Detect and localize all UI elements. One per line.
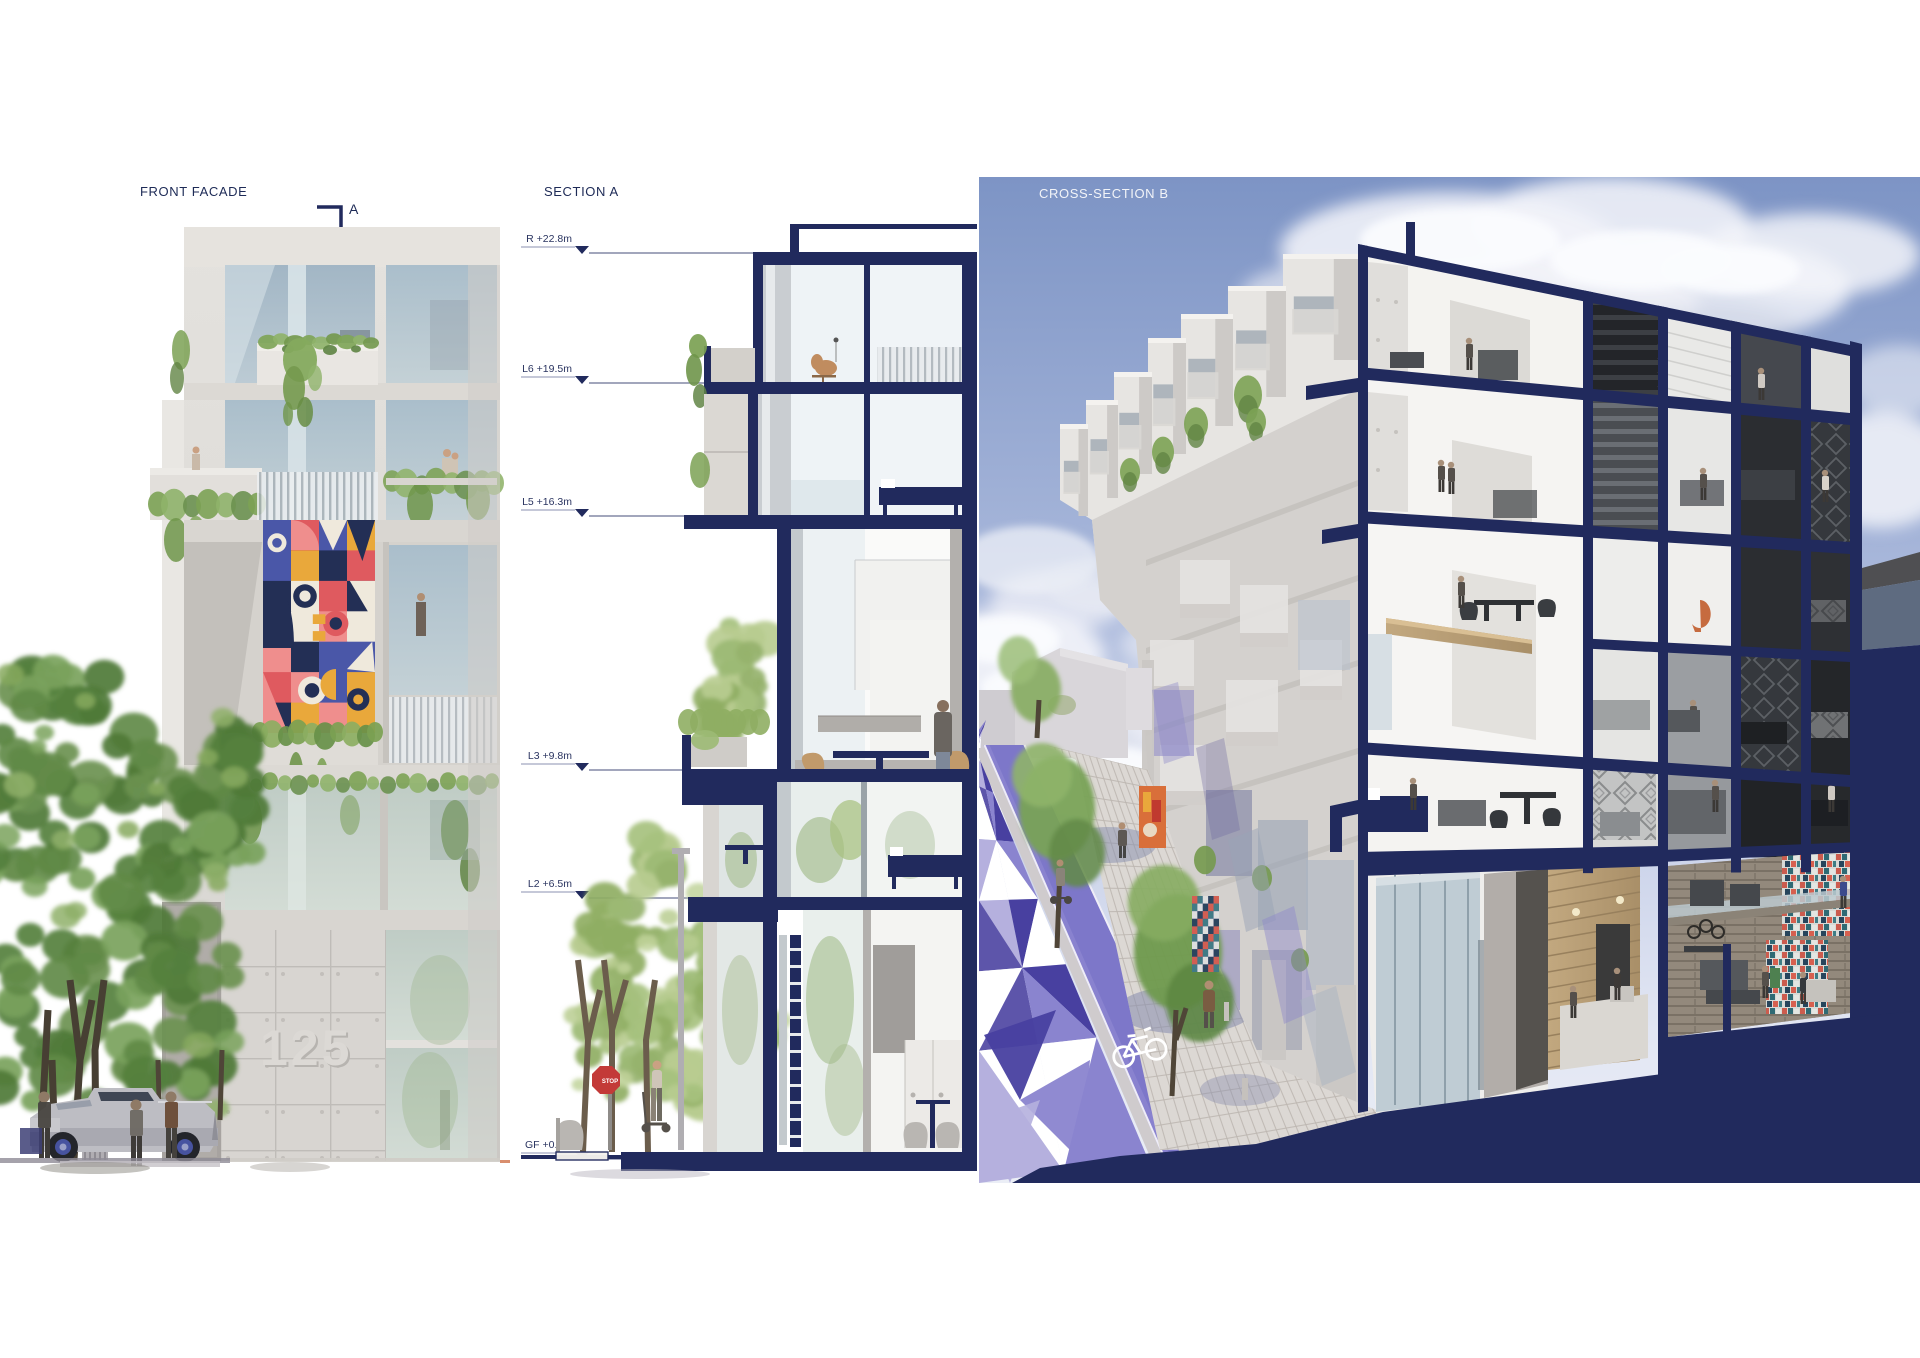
svg-text:125: 125 <box>260 1020 352 1076</box>
svg-text:L6 +19.5m: L6 +19.5m <box>522 363 572 375</box>
svg-text:R +22.8m: R +22.8m <box>526 233 572 245</box>
svg-text:L3 +9.8m: L3 +9.8m <box>528 750 572 762</box>
svg-text:FRONT FACADE: FRONT FACADE <box>140 184 247 199</box>
svg-text:CROSS-SECTION B: CROSS-SECTION B <box>1039 186 1169 201</box>
svg-text:SECTION A: SECTION A <box>544 184 619 199</box>
svg-text:L5 +16.3m: L5 +16.3m <box>522 496 572 508</box>
svg-text:STOP: STOP <box>602 1079 618 1085</box>
svg-text:L2 +6.5m: L2 +6.5m <box>528 878 572 890</box>
svg-text:A: A <box>349 201 359 217</box>
